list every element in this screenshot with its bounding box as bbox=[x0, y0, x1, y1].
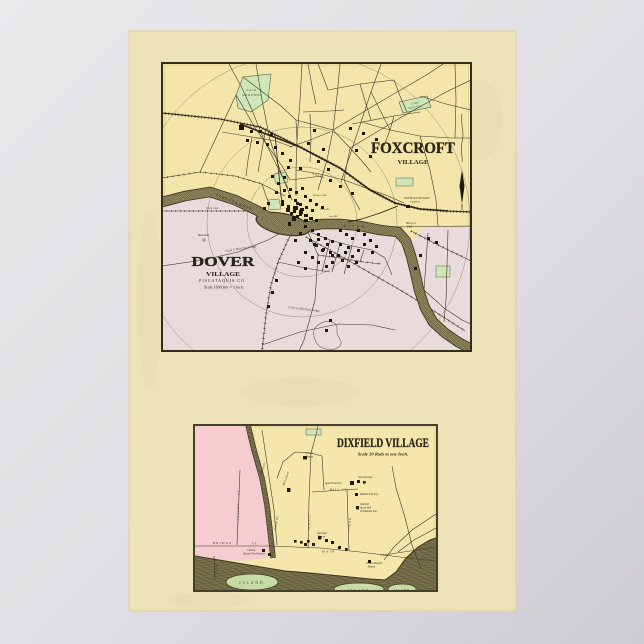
svg-text:BRIDGE: BRIDGE bbox=[213, 541, 233, 545]
svg-text:Bobbin Factory: Bobbin Factory bbox=[360, 492, 379, 496]
svg-text:DOVER: DOVER bbox=[192, 255, 256, 270]
svg-text:STATION: STATION bbox=[410, 201, 420, 204]
svg-text:Kitchen's Mill: Kitchen's Mill bbox=[312, 194, 327, 197]
svg-text:DIXFIELD VILLAGE: DIXFIELD VILLAGE bbox=[337, 436, 429, 450]
svg-text:MAIN: MAIN bbox=[322, 550, 336, 554]
svg-text:House: House bbox=[317, 535, 326, 538]
svg-text:Harvey's: Harvey's bbox=[405, 222, 416, 225]
svg-text:Scale 20 Rods to one Inch.: Scale 20 Rods to one Inch. bbox=[358, 452, 409, 457]
svg-text:DOVER & FOXCROFT: DOVER & FOXCROFT bbox=[404, 197, 430, 200]
svg-text:ST.: ST. bbox=[238, 489, 241, 495]
svg-text:VILLAGE: VILLAGE bbox=[398, 159, 429, 166]
svg-text:FOXCROFT: FOXCROFT bbox=[371, 140, 455, 157]
svg-text:Scale 1600 feet = 1 inch.: Scale 1600 feet = 1 inch. bbox=[204, 285, 244, 290]
svg-text:Town Line: Town Line bbox=[206, 206, 219, 210]
svg-text:Spool Factory: Spool Factory bbox=[325, 481, 342, 485]
svg-text:VILLAGE: VILLAGE bbox=[206, 271, 240, 278]
svg-text:Saw Factory: Saw Factory bbox=[358, 475, 373, 479]
svg-text:RIVER: RIVER bbox=[344, 224, 366, 229]
svg-text:Falls: Falls bbox=[406, 226, 413, 229]
svg-text:ST.: ST. bbox=[252, 542, 259, 546]
svg-text:House: House bbox=[305, 455, 314, 458]
svg-text:Saw Mill: Saw Mill bbox=[329, 215, 338, 218]
svg-text:W.J.Rankin Esq.: W.J.Rankin Esq. bbox=[360, 510, 378, 513]
svg-text:SCHOOL: SCHOOL bbox=[308, 514, 312, 530]
svg-text:FAIR: FAIR bbox=[246, 88, 257, 92]
svg-text:House: House bbox=[367, 565, 376, 568]
svg-text:HILL ST.: HILL ST. bbox=[330, 489, 349, 492]
svg-text:LEAVITT: LEAVITT bbox=[237, 503, 241, 520]
svg-text:Steam Fish Factory: Steam Fish Factory bbox=[243, 552, 266, 555]
svg-text:ST.: ST. bbox=[380, 553, 387, 557]
svg-text:Bensonia: Bensonia bbox=[198, 233, 210, 237]
svg-text:PISCATAQUIS CO.: PISCATAQUIS CO. bbox=[199, 278, 247, 283]
svg-text:ISLAND: ISLAND bbox=[239, 581, 264, 585]
